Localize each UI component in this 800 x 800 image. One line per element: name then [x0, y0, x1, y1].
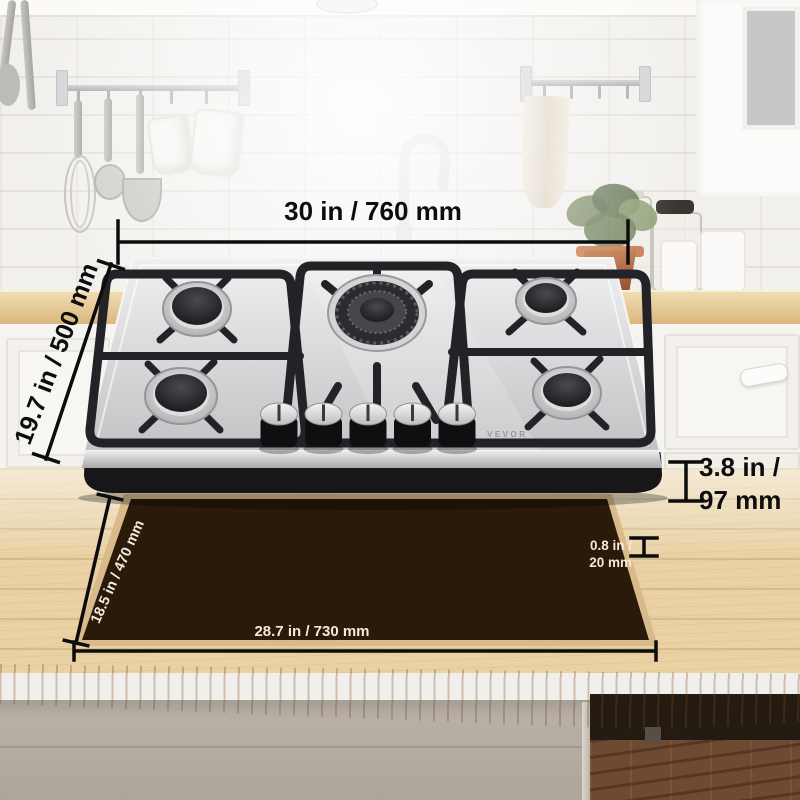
label-top-width: 30 in / 760 mm — [173, 196, 573, 227]
label-body-height-line2: 97 mm — [699, 485, 781, 516]
label-cutout-width: 28.7 in / 730 mm — [212, 623, 412, 640]
label-mat-thickness-line2: 20 mm — [535, 554, 632, 571]
dim-line-cutout-width — [74, 642, 656, 660]
label-mat-thickness: 0.8 in / 20 mm — [535, 537, 632, 571]
label-body-height-line1: 3.8 in / — [699, 452, 780, 483]
dim-line-body-height — [670, 462, 702, 501]
dim-line-mat-thickness — [631, 538, 657, 556]
label-mat-thickness-line1: 0.8 in / — [535, 537, 632, 554]
dim-line-top-width — [118, 221, 628, 263]
dimension-lines — [0, 0, 800, 800]
product-dimension-image: VEVOR 30 in / 760 mm 19.7 in / 500 mm 3.… — [0, 0, 800, 800]
